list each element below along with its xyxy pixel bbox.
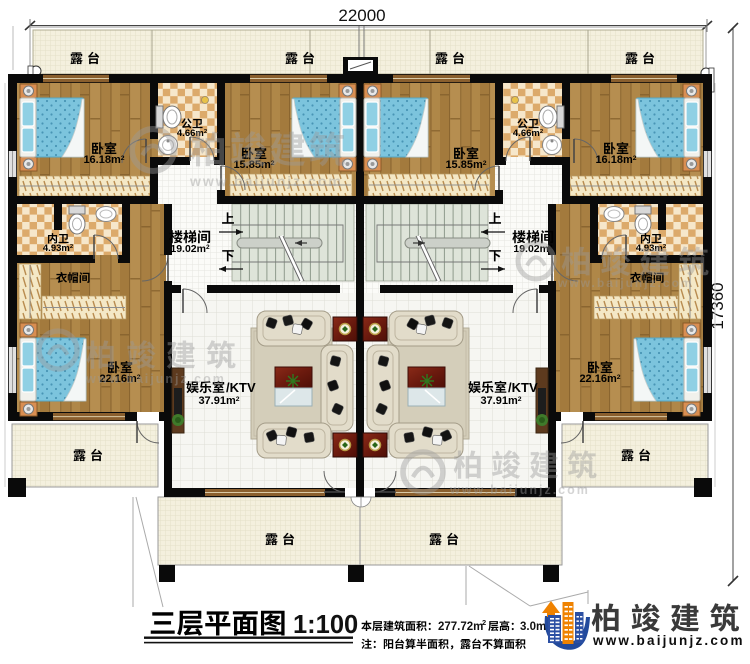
svg-text:37.91m2: 37.91m2 xyxy=(198,395,239,407)
svg-text:22000: 22000 xyxy=(338,6,385,25)
svg-text:1:100: 1:100 xyxy=(293,611,358,639)
svg-text:4.93m2: 4.93m2 xyxy=(43,243,74,254)
svg-text:37.91m2: 37.91m2 xyxy=(480,395,521,407)
svg-text:15.85m2: 15.85m2 xyxy=(445,159,486,171)
svg-text:19.02m2: 19.02m2 xyxy=(170,243,210,255)
svg-text:/KTV: /KTV xyxy=(226,380,256,395)
svg-text:4.66m2: 4.66m2 xyxy=(177,128,208,139)
svg-text:www.baijunjz.com: www.baijunjz.com xyxy=(557,276,694,290)
svg-text:22.16m2: 22.16m2 xyxy=(579,373,620,385)
svg-text:3.0m: 3.0m xyxy=(520,621,546,633)
svg-text:277.72m: 277.72m xyxy=(438,621,483,633)
svg-text:2: 2 xyxy=(482,618,486,627)
svg-text:www.baijunjz.com: www.baijunjz.com xyxy=(85,372,226,386)
svg-text:16.18m2: 16.18m2 xyxy=(595,154,636,166)
svg-text:www.baijunjz.com: www.baijunjz.com xyxy=(592,633,745,648)
svg-text:16.18m2: 16.18m2 xyxy=(83,154,124,166)
svg-text:4.66m2: 4.66m2 xyxy=(513,128,544,139)
svg-text:www.baijunjz.com: www.baijunjz.com xyxy=(189,173,343,189)
svg-text:/KTV: /KTV xyxy=(508,380,538,395)
svg-text:4.93m2: 4.93m2 xyxy=(636,243,667,254)
svg-text:www.baijunjz.com: www.baijunjz.com xyxy=(449,483,590,497)
